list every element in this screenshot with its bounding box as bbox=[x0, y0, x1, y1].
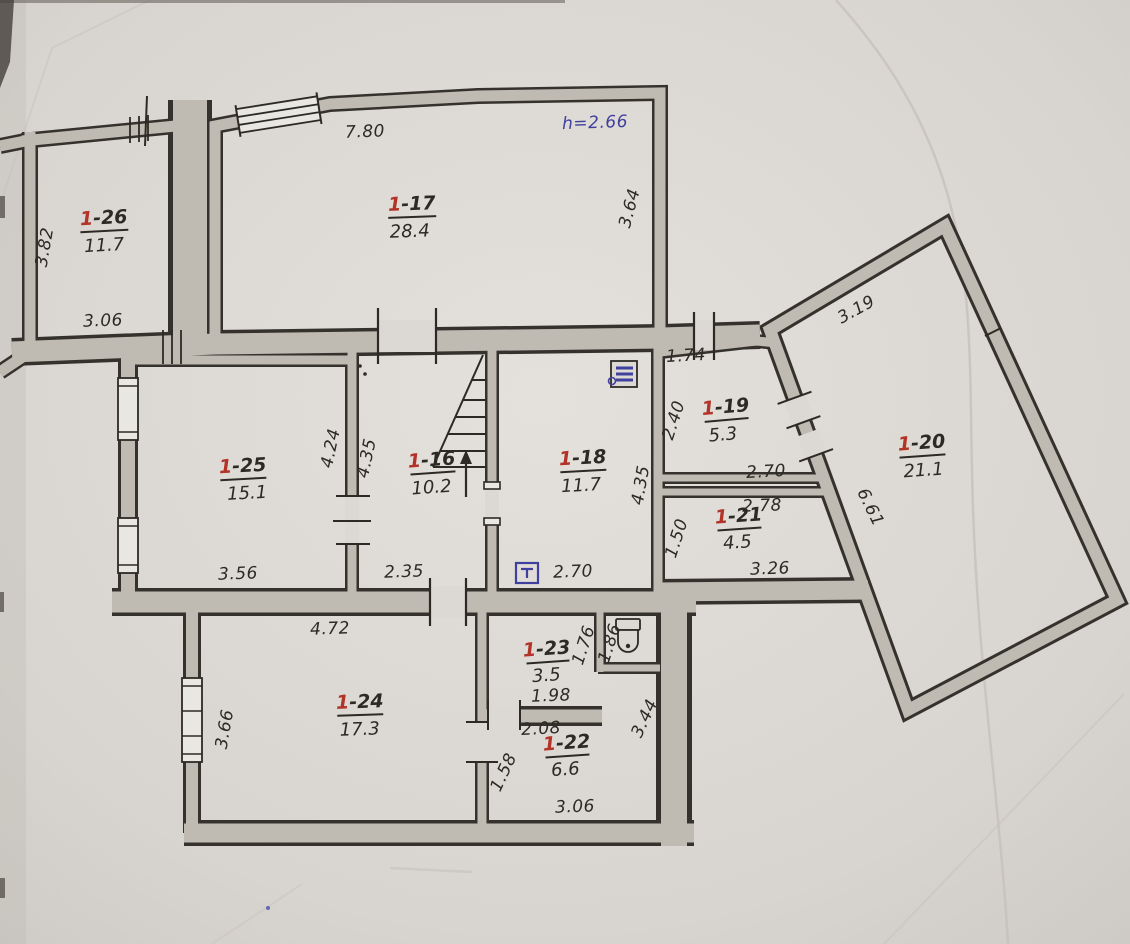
room-number-suffix: -26 bbox=[93, 206, 128, 230]
dim-3-06-room26: 3.06 bbox=[83, 310, 124, 331]
svg-text:1-17: 1-17 bbox=[388, 192, 437, 216]
svg-text:1-26: 1-26 bbox=[79, 206, 128, 230]
svg-text:1-25: 1-25 bbox=[218, 454, 267, 478]
dim-3-06-room22: 3.06 bbox=[555, 796, 596, 817]
pencil-dot bbox=[358, 364, 362, 368]
ceiling-height-note: h=2.66 bbox=[562, 112, 629, 134]
room-number-prefix: 1 bbox=[79, 208, 93, 231]
dim-2-70-room19: 2.70 bbox=[746, 461, 787, 483]
room-area: 21.1 bbox=[903, 459, 944, 483]
scanned-floor-plan-page: 1-26 11.7 1-17 28.4 1-25 15.1 1-16 10.2 … bbox=[0, 0, 1130, 944]
room-number-suffix: -18 bbox=[572, 446, 607, 470]
dim-2-08: 2.08 bbox=[521, 718, 562, 740]
window-room24-left bbox=[182, 678, 202, 762]
dim-4-72: 4.72 bbox=[310, 618, 351, 639]
room-area: 28.4 bbox=[389, 220, 430, 242]
room-number-prefix: 1 bbox=[388, 193, 402, 215]
window-left-wall-1 bbox=[118, 378, 138, 440]
room-number-suffix: -16 bbox=[420, 447, 456, 471]
room-number-suffix: -17 bbox=[401, 192, 437, 215]
room-number-suffix: -25 bbox=[232, 454, 267, 478]
pencil-dot bbox=[363, 372, 367, 376]
dim-1-98: 1.98 bbox=[531, 685, 572, 706]
dim-7-80: 7.80 bbox=[345, 121, 386, 142]
room-number-prefix: 1 bbox=[558, 448, 572, 471]
svg-text:1-23: 1-23 bbox=[522, 636, 571, 661]
room-number-suffix: -20 bbox=[910, 430, 946, 454]
svg-text:1-24: 1-24 bbox=[336, 690, 384, 714]
svg-text:1-19: 1-19 bbox=[701, 394, 750, 420]
room-number-suffix: -19 bbox=[714, 394, 750, 419]
svg-text:1-16: 1-16 bbox=[407, 447, 456, 472]
room-area: 5.3 bbox=[708, 423, 738, 446]
room-area: 11.7 bbox=[561, 474, 603, 497]
svg-text:1-20: 1-20 bbox=[897, 430, 946, 455]
room-area: 6.6 bbox=[550, 758, 580, 781]
floor-plan-canvas: 1-26 11.7 1-17 28.4 1-25 15.1 1-16 10.2 … bbox=[0, 0, 1130, 944]
electrical-panel-icon bbox=[609, 361, 638, 387]
room-number-prefix: 1 bbox=[336, 691, 350, 713]
room-area: 11.7 bbox=[84, 234, 126, 257]
dim-1-74: 1.74 bbox=[666, 345, 707, 367]
room-area: 17.3 bbox=[339, 718, 380, 740]
dim-3-56: 3.56 bbox=[218, 563, 259, 584]
room-number-prefix: 1 bbox=[218, 456, 232, 479]
dim-3-26: 3.26 bbox=[750, 558, 791, 579]
dim-2-78: 2.78 bbox=[742, 495, 783, 516]
room-area: 15.1 bbox=[227, 482, 268, 505]
dim-2-70-room18: 2.70 bbox=[553, 561, 594, 582]
dim-2-35: 2.35 bbox=[384, 561, 425, 582]
room-number-suffix: -24 bbox=[349, 690, 384, 713]
room-area: 10.2 bbox=[411, 476, 452, 500]
window-left-wall-2 bbox=[118, 518, 138, 573]
room-area: 3.5 bbox=[531, 664, 561, 687]
svg-text:1-18: 1-18 bbox=[558, 446, 607, 470]
room-number-suffix: -23 bbox=[535, 636, 571, 660]
room-area: 4.5 bbox=[722, 531, 752, 554]
